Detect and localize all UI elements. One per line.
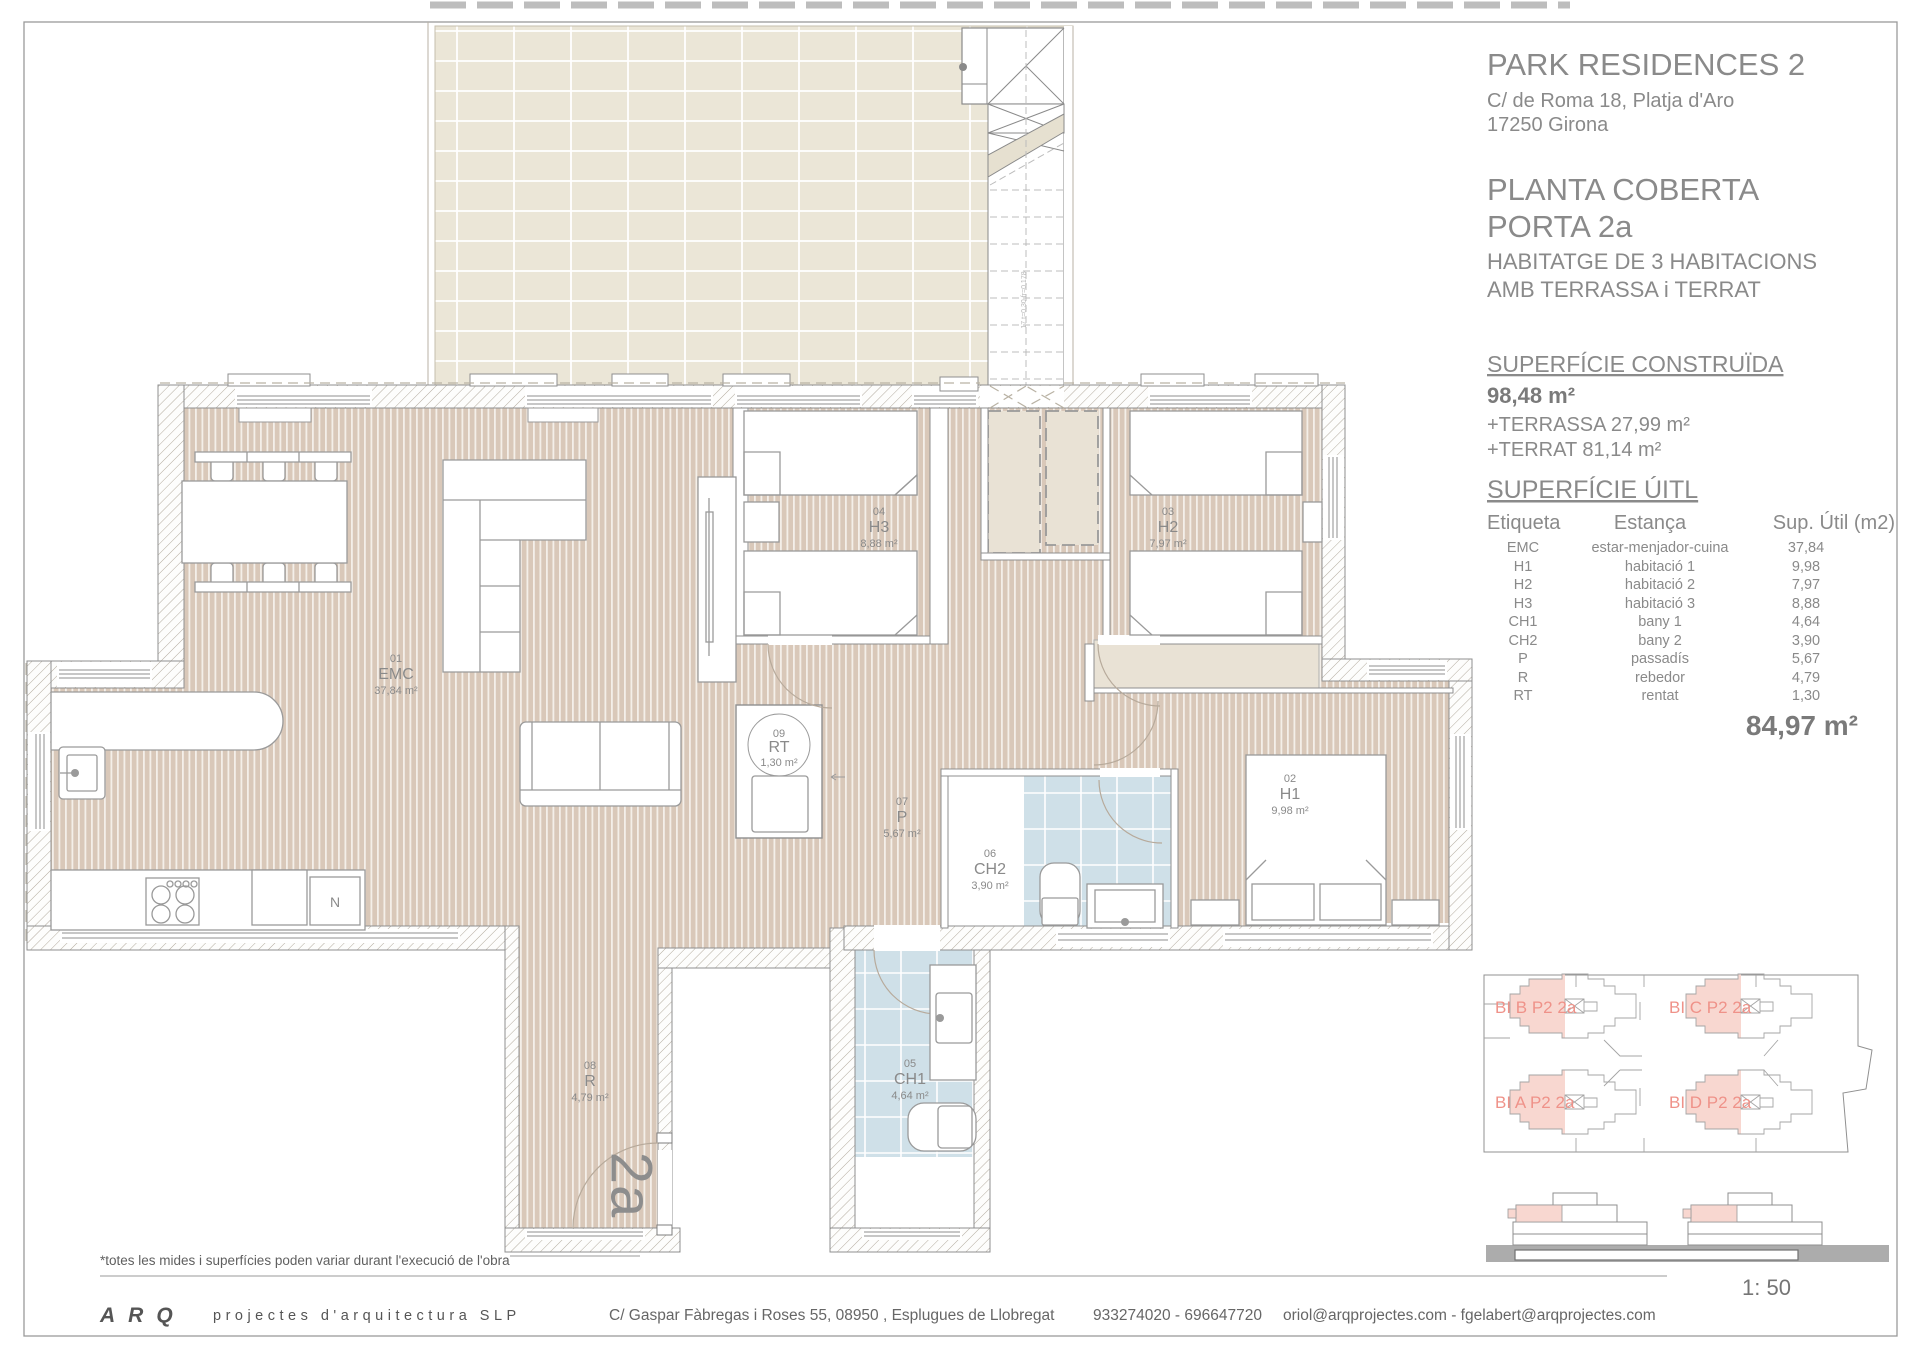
svg-text:4,79: 4,79 xyxy=(1792,670,1820,686)
svg-text:1: 50: 1: 50 xyxy=(1742,1275,1791,1300)
svg-text:84,97 m²: 84,97 m² xyxy=(1746,710,1858,741)
svg-text:PARK RESIDENCES 2: PARK RESIDENCES 2 xyxy=(1487,47,1805,82)
svg-text:Sup. Útil (m2): Sup. Útil (m2) xyxy=(1773,511,1895,534)
svg-text:R: R xyxy=(584,1073,596,1090)
svg-text:BI B P2 2a: BI B P2 2a xyxy=(1495,998,1577,1017)
svg-text:habitació 1: habitació 1 xyxy=(1625,559,1695,575)
svg-text:98,48 m²: 98,48 m² xyxy=(1487,383,1575,408)
svg-text:RT: RT xyxy=(768,739,789,756)
svg-text:H2: H2 xyxy=(1158,519,1179,536)
svg-text:CH1: CH1 xyxy=(894,1071,926,1088)
svg-text:passadís: passadís xyxy=(1631,651,1689,667)
svg-text:AMB TERRASSA i TERRAT: AMB TERRASSA i TERRAT xyxy=(1487,277,1761,302)
svg-text:bany 1: bany 1 xyxy=(1638,614,1682,630)
svg-text:+TERRASSA 27,99 m²: +TERRASSA 27,99 m² xyxy=(1487,414,1690,436)
svg-text:P: P xyxy=(897,809,908,826)
svg-text:SUPERFÍCIE CONSTRUÏDA: SUPERFÍCIE CONSTRUÏDA xyxy=(1487,351,1784,377)
svg-text:37,84: 37,84 xyxy=(1788,540,1824,556)
svg-text:9,98 m²: 9,98 m² xyxy=(1271,805,1309,817)
svg-text:4,64: 4,64 xyxy=(1792,614,1820,630)
svg-text:05: 05 xyxy=(904,1058,916,1070)
svg-text:07: 07 xyxy=(896,796,908,808)
svg-text:7,97 m²: 7,97 m² xyxy=(1149,538,1187,550)
svg-text:rebedor: rebedor xyxy=(1635,670,1685,686)
svg-text:RT: RT xyxy=(1513,688,1532,704)
svg-text:CH2: CH2 xyxy=(974,861,1006,878)
svg-text:37,84 m²: 37,84 m² xyxy=(374,685,418,697)
svg-text:06: 06 xyxy=(984,848,996,860)
svg-text:+TERRAT 81,14 m²: +TERRAT 81,14 m² xyxy=(1487,439,1662,461)
svg-text:CH1: CH1 xyxy=(1508,614,1537,630)
svg-text:Estança: Estança xyxy=(1614,512,1687,534)
svg-text:habitació 2: habitació 2 xyxy=(1625,577,1695,593)
svg-text:1,30: 1,30 xyxy=(1792,688,1820,704)
svg-text:P: P xyxy=(1518,651,1528,667)
svg-text:PLANTA COBERTA: PLANTA COBERTA xyxy=(1487,172,1760,207)
svg-text:BI C P2 2a: BI C P2 2a xyxy=(1669,998,1752,1017)
svg-text:habitació 3: habitació 3 xyxy=(1625,596,1695,612)
svg-text:9,98: 9,98 xyxy=(1792,559,1820,575)
svg-text:17250 Girona: 17250 Girona xyxy=(1487,114,1609,136)
svg-text:H1: H1 xyxy=(1514,559,1533,575)
svg-text:4,79 m²: 4,79 m² xyxy=(571,1092,609,1104)
svg-text:08: 08 xyxy=(584,1060,596,1072)
svg-text:HABITATGE DE 3 HABITACIONS: HABITATGE DE 3 HABITACIONS xyxy=(1487,249,1817,274)
svg-text:*totes les mides i superfícies: *totes les mides i superfícies poden var… xyxy=(100,1253,510,1268)
svg-text:04: 04 xyxy=(873,506,885,518)
svg-text:projectes d'arquitectura SLP: projectes d'arquitectura SLP xyxy=(213,1308,521,1324)
svg-text:5,67: 5,67 xyxy=(1792,651,1820,667)
svg-text:H2: H2 xyxy=(1514,577,1533,593)
svg-text:bany 2: bany 2 xyxy=(1638,633,1682,649)
svg-text:BI D P2 2a: BI D P2 2a xyxy=(1669,1093,1752,1112)
svg-text:estar-menjador-cuina: estar-menjador-cuina xyxy=(1591,540,1729,556)
svg-text:4,64 m²: 4,64 m² xyxy=(891,1090,929,1102)
svg-text:1,30 m²: 1,30 m² xyxy=(760,757,798,769)
svg-text:17 t=0,30 fr=0,178: 17 t=0,30 fr=0,178 xyxy=(1021,271,1028,328)
svg-text:5,67 m²: 5,67 m² xyxy=(883,828,921,840)
svg-text:8,88: 8,88 xyxy=(1792,596,1820,612)
svg-text:H3: H3 xyxy=(1514,596,1533,612)
svg-text:H3: H3 xyxy=(869,519,890,536)
svg-text:EMC: EMC xyxy=(378,666,414,683)
svg-text:933274020 - 696647720: 933274020 - 696647720 xyxy=(1093,1307,1262,1324)
svg-text:BI A P2 2a: BI A P2 2a xyxy=(1495,1093,1575,1112)
svg-text:rentat: rentat xyxy=(1641,688,1678,704)
svg-text:02: 02 xyxy=(1284,773,1296,785)
svg-text:01: 01 xyxy=(390,653,402,665)
svg-text:R: R xyxy=(1518,670,1528,686)
svg-text:C/ Gaspar Fàbregas i Roses 55,: C/ Gaspar Fàbregas i Roses 55, 08950 , E… xyxy=(609,1307,1055,1324)
svg-text:CH2: CH2 xyxy=(1508,633,1537,649)
svg-text:N: N xyxy=(330,894,340,910)
svg-text:ARQ: ARQ xyxy=(99,1304,186,1327)
svg-text:C/ de Roma 18, Platja d'Aro: C/ de Roma 18, Platja d'Aro xyxy=(1487,90,1734,112)
svg-text:EMC: EMC xyxy=(1507,540,1539,556)
svg-text:PORTA 2a: PORTA 2a xyxy=(1487,209,1633,244)
svg-text:H1: H1 xyxy=(1280,786,1301,803)
svg-text:7,97: 7,97 xyxy=(1792,577,1820,593)
svg-text:8,88 m²: 8,88 m² xyxy=(860,538,898,550)
svg-text:3,90: 3,90 xyxy=(1792,633,1820,649)
svg-text:2a: 2a xyxy=(599,1152,664,1219)
svg-text:SUPERFÍCIE ÚITL: SUPERFÍCIE ÚITL xyxy=(1487,475,1698,504)
svg-text:oriol@arqprojectes.com - fgela: oriol@arqprojectes.com - fgelabert@arqpr… xyxy=(1283,1307,1656,1324)
svg-text:Etiqueta: Etiqueta xyxy=(1487,512,1561,534)
svg-text:3,90 m²: 3,90 m² xyxy=(971,880,1009,892)
svg-text:03: 03 xyxy=(1162,506,1174,518)
